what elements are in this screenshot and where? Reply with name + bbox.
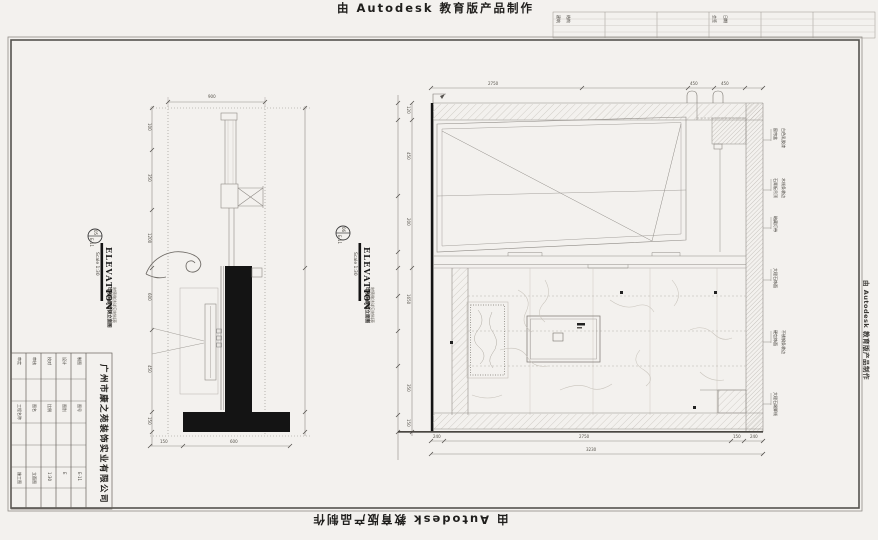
title-block-cell: 比例	[47, 404, 51, 412]
dimension-label: 240	[433, 435, 441, 439]
dimension-label: 450	[721, 82, 729, 86]
signature-strip-label: 结构	[566, 15, 570, 23]
dimension-label: 600	[230, 440, 238, 444]
title-block-cell: E-11	[77, 472, 81, 481]
detail-callout-number: 06	[341, 227, 345, 232]
material-annotation: 窗帘盒	[773, 128, 777, 140]
title-block-cell: 制图	[77, 357, 81, 365]
material-annotation: 硬包饰面	[773, 330, 777, 346]
material-annotation: 白色乳胶漆	[781, 128, 785, 148]
drawing-sheet: 由 Autodesk 教育版产品制作 由 Autodesk 教育版产品制作 由 …	[0, 0, 878, 540]
title-block-grid	[11, 353, 112, 509]
dimension-label: 1650	[406, 294, 410, 304]
title-block-cell: 图名	[32, 404, 36, 412]
title-block-cell: 1:30	[47, 472, 51, 481]
title-block-cell: 图号	[77, 404, 81, 412]
title-block-cell: 设计	[62, 357, 66, 365]
autodesk-watermark-top: 由 Autodesk 教育版产品制作	[337, 3, 534, 15]
signature-strip-label: 日期	[723, 15, 727, 23]
elevation-caption: 电视背景墙侧立面图	[106, 287, 111, 328]
dimension-label: 2750	[488, 82, 498, 86]
title-block-cell: E	[62, 472, 66, 475]
autodesk-watermark-bottom: 由 Autodesk 教育版产品制作	[290, 513, 530, 525]
material-annotation: 大理石踢脚线	[773, 392, 777, 416]
elevation-subcaption: 材质做法详见材料表	[112, 287, 116, 323]
left-elevation-linework	[88, 97, 312, 448]
detail-callout-sheet: E-11	[89, 238, 93, 247]
title-block-cell: 校对	[47, 357, 51, 365]
material-annotation: 大理石饰面	[773, 268, 777, 288]
autodesk-watermark-side: 由 Autodesk 教育版产品制作	[863, 280, 870, 380]
title-block-cell: 工程名称	[17, 404, 21, 420]
dimension-label: 150	[160, 440, 168, 444]
title-block-cell: 审核	[32, 357, 36, 365]
dimension-label: 200	[406, 218, 410, 226]
material-annotation: 不锈钢条收边	[781, 330, 785, 354]
dimension-label: 900	[208, 95, 216, 99]
detail-callout-number: 05	[93, 230, 97, 235]
elevation-subcaption: 材质做法详见材料表	[370, 287, 374, 323]
material-annotation: 暗藏灯带	[773, 216, 777, 232]
detail-callout-sheet: E-11	[337, 235, 341, 244]
dimension-label: 450	[147, 365, 151, 373]
dimension-label: 1200	[147, 233, 151, 243]
dimension-total-label: 3230	[586, 448, 596, 452]
dimension-label: 150	[733, 435, 741, 439]
dimension-label: 600	[147, 293, 151, 301]
dimension-label: 450	[406, 152, 410, 160]
dimension-label: 350	[406, 384, 410, 392]
dimension-label: 100	[147, 123, 151, 131]
material-annotation: 木线条收边	[781, 178, 785, 198]
title-block-cell: 立面图	[32, 472, 36, 484]
dimension-label: 350	[147, 174, 151, 182]
dimension-label: 2750	[579, 435, 589, 439]
company-name: 广州市康之苑装饰实业有限公司	[98, 364, 107, 504]
signature-strip-label: 建筑	[556, 15, 560, 23]
elevation-caption: 电视背景墙立面图	[364, 287, 369, 323]
title-block-cell: 图别	[62, 404, 66, 412]
dimension-label: 150	[406, 419, 410, 427]
elevation-scale: Scale 1:30	[352, 252, 357, 276]
elevation-scale: Scale 1:30	[94, 252, 99, 276]
title-block-cell: 施工图	[17, 472, 21, 484]
dimension-label: 150	[147, 417, 151, 425]
dimension-label: 120	[406, 106, 410, 114]
signature-strip-label: 会签	[712, 15, 716, 23]
material-annotation: 石膏板吊顶	[773, 178, 777, 198]
title-block-cell: 审定	[17, 357, 21, 365]
dimension-label: 450	[690, 82, 698, 86]
dimension-label: 240	[750, 435, 758, 439]
cad-linework	[0, 0, 878, 540]
right-elevation-linework	[336, 86, 771, 460]
